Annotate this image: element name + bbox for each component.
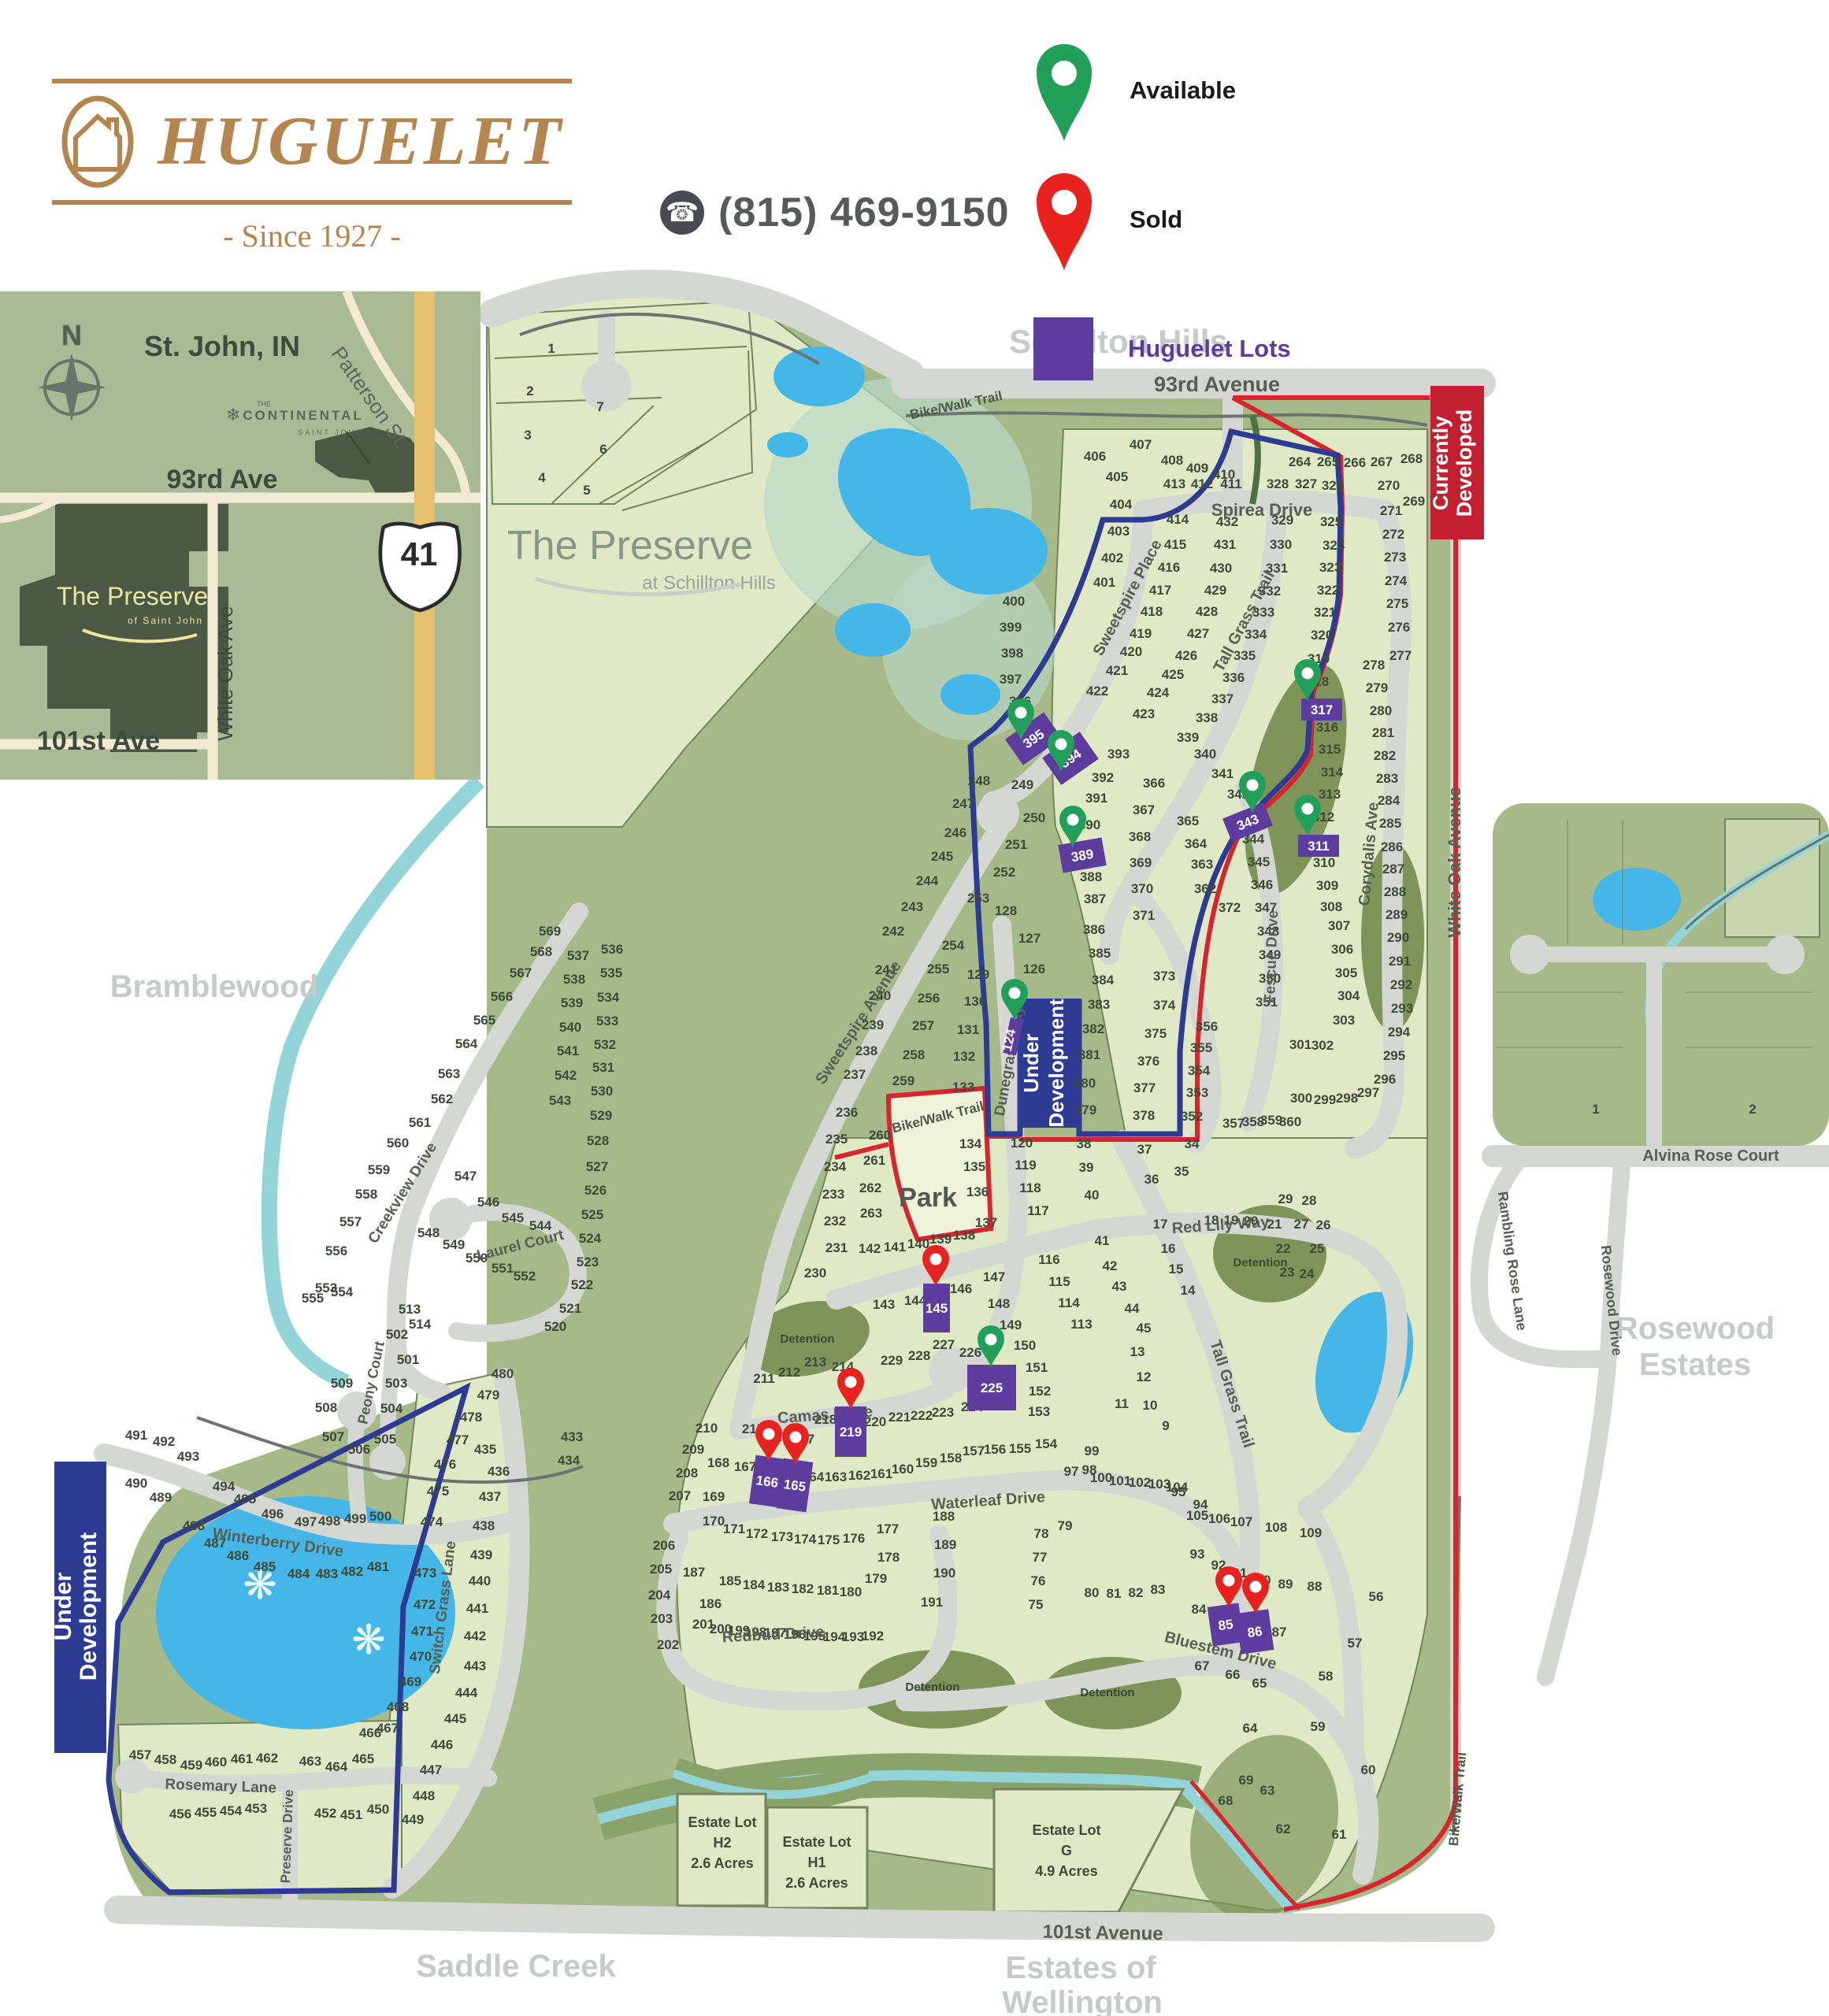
lot-number-80: 80 xyxy=(1085,1585,1100,1600)
lot-number-366: 366 xyxy=(1143,776,1165,791)
lot-number-373: 373 xyxy=(1153,969,1175,984)
lot-number-153: 153 xyxy=(1028,1404,1050,1419)
inset-city-label: St. John, IN xyxy=(144,330,300,362)
lot-number-513: 513 xyxy=(399,1302,421,1317)
lot-number-306: 306 xyxy=(1331,942,1353,957)
lot-number-143: 143 xyxy=(873,1297,895,1312)
lot-number-99: 99 xyxy=(1085,1443,1100,1458)
lot-number-405: 405 xyxy=(1106,469,1128,484)
lot-number-310: 310 xyxy=(1313,855,1335,870)
inset-whiteoak-label: White Oak Ave xyxy=(213,606,237,741)
lot-number-539: 539 xyxy=(561,995,583,1010)
lot-number-174: 174 xyxy=(794,1532,817,1547)
lot-number-561: 561 xyxy=(409,1115,431,1130)
lot-number-159: 159 xyxy=(915,1455,937,1470)
lot-number-171: 171 xyxy=(723,1521,745,1536)
lot-number-251: 251 xyxy=(1005,837,1027,852)
lot-number-161: 161 xyxy=(870,1466,892,1481)
lot-number-545: 545 xyxy=(502,1210,524,1225)
lot-number-62: 62 xyxy=(1276,1821,1291,1836)
lot-number-276: 276 xyxy=(1388,620,1410,635)
lot-number-492: 492 xyxy=(153,1434,175,1449)
lot-number-443: 443 xyxy=(464,1658,486,1673)
lot-number-498: 498 xyxy=(318,1514,340,1529)
lot-number-182: 182 xyxy=(792,1581,814,1596)
lot-number-211: 211 xyxy=(753,1371,774,1386)
inset-map[interactable]: N St. John, IN Patterson St. ❄ THE CONTI… xyxy=(0,291,480,780)
lot-number-565: 565 xyxy=(473,1013,495,1028)
huguelet-lot-number: 85 xyxy=(1217,1617,1234,1633)
lot-number-427: 427 xyxy=(1187,626,1209,641)
lot-number-436: 436 xyxy=(488,1464,510,1479)
lot-number-64: 64 xyxy=(1243,1721,1258,1736)
legend-label-available: Available xyxy=(1130,76,1236,105)
lot-number-474: 474 xyxy=(421,1514,443,1529)
lot-number-460: 460 xyxy=(205,1755,227,1770)
lot-number-35: 35 xyxy=(1174,1164,1189,1179)
lot-number-28: 28 xyxy=(1302,1193,1317,1208)
lot-number-493: 493 xyxy=(177,1449,199,1464)
lot-number-93: 93 xyxy=(1190,1547,1205,1562)
lot-number-270: 270 xyxy=(1378,478,1400,493)
lot-number-526: 526 xyxy=(584,1183,607,1198)
lot-number-484: 484 xyxy=(288,1566,310,1581)
lot-number-3: 3 xyxy=(524,428,531,443)
lot-number-163: 163 xyxy=(825,1469,847,1484)
lot-number-254: 254 xyxy=(942,938,965,953)
lot-number-431: 431 xyxy=(1214,537,1236,552)
lot-number-223: 223 xyxy=(932,1405,954,1420)
lot-number-393: 393 xyxy=(1107,747,1130,762)
huguelet-lot-number: 219 xyxy=(840,1425,862,1440)
lot-number-371: 371 xyxy=(1133,908,1155,923)
lot-number-425: 425 xyxy=(1162,667,1184,682)
lot-number-169: 169 xyxy=(703,1489,725,1504)
lot-number-486: 486 xyxy=(227,1548,249,1563)
lot-number-444: 444 xyxy=(455,1685,478,1700)
lot-number-178: 178 xyxy=(877,1550,900,1565)
lot-number-181: 181 xyxy=(817,1583,839,1598)
lot-number-418: 418 xyxy=(1141,604,1163,619)
huguelet-lot-number: 166 xyxy=(755,1473,780,1491)
lot-number-157: 157 xyxy=(963,1443,985,1458)
lot-number-233: 233 xyxy=(822,1187,844,1202)
lot-number-569: 569 xyxy=(539,924,561,939)
site-map[interactable]: ❋ ❋ xyxy=(0,0,1829,2016)
lot-number-176: 176 xyxy=(843,1531,865,1546)
lot-number-36: 36 xyxy=(1145,1172,1159,1187)
lot-number-337: 337 xyxy=(1211,691,1234,706)
lot-number-173: 173 xyxy=(771,1529,793,1544)
lot-number-327: 327 xyxy=(1295,476,1317,491)
area-label-rosewood-2: Estates xyxy=(1639,1347,1751,1382)
lot-number-66: 66 xyxy=(1226,1667,1241,1682)
lot-number-557: 557 xyxy=(339,1214,362,1229)
lot-number-449: 449 xyxy=(402,1812,424,1827)
lot-number-540: 540 xyxy=(559,1020,581,1035)
lot-number-507: 507 xyxy=(322,1429,344,1444)
lot-number-281: 281 xyxy=(1372,725,1394,740)
lot-number-45: 45 xyxy=(1137,1321,1152,1336)
lot-number-258: 258 xyxy=(903,1047,925,1062)
lot-number-558: 558 xyxy=(355,1187,377,1202)
lot-number-482: 482 xyxy=(341,1564,363,1579)
lot-number-14: 14 xyxy=(1181,1283,1196,1298)
svg-text:The Preserve: The Preserve xyxy=(507,523,753,569)
lot-number-79: 79 xyxy=(1058,1518,1073,1533)
lot-number-142: 142 xyxy=(859,1241,881,1256)
lot-number-149: 149 xyxy=(1000,1317,1022,1332)
svg-text:of Saint John: of Saint John xyxy=(128,615,203,626)
lot-number-9: 9 xyxy=(1162,1418,1169,1433)
lot-number-505: 505 xyxy=(374,1432,396,1447)
lot-number-567: 567 xyxy=(510,965,532,980)
svg-text:Development: Development xyxy=(1044,999,1068,1128)
lot-number-264: 264 xyxy=(1289,454,1311,469)
lot-number-383: 383 xyxy=(1088,997,1110,1012)
lot-number-4: 4 xyxy=(538,470,546,485)
lot-number-477: 477 xyxy=(447,1432,469,1447)
area-label-rosewood-1: Rosewood xyxy=(1616,1311,1775,1346)
page: { "header": { "logo": { "name": "HUGUELE… xyxy=(0,0,1829,2016)
lot-number-483: 483 xyxy=(316,1566,338,1581)
lot-number-67: 67 xyxy=(1195,1658,1210,1673)
lot-number-177: 177 xyxy=(877,1521,899,1536)
lot-number-209: 209 xyxy=(682,1442,704,1457)
lot-number-250: 250 xyxy=(1023,810,1045,825)
huguelet-lot-219[interactable]: 219 xyxy=(835,1406,866,1457)
svg-text:The Preserve: The Preserve xyxy=(57,582,208,610)
lot-number-472: 472 xyxy=(414,1597,436,1612)
lot-number-419: 419 xyxy=(1130,626,1152,641)
lot-number-380: 380 xyxy=(1074,1076,1096,1091)
lot-number-521: 521 xyxy=(559,1301,581,1316)
lot-number-489: 489 xyxy=(150,1490,172,1505)
lot-number-202: 202 xyxy=(657,1637,679,1652)
lot-number-341: 341 xyxy=(1211,766,1234,781)
map-legend: Available Sold Huguelet Lots xyxy=(1033,39,1475,427)
lot-number-133: 133 xyxy=(952,1080,974,1095)
lot-number-339: 339 xyxy=(1177,730,1199,745)
lot-number-398: 398 xyxy=(1001,646,1023,661)
detention-label-0: Detention xyxy=(780,1332,834,1346)
lot-number-162: 162 xyxy=(848,1468,870,1483)
lot-number-222: 222 xyxy=(911,1408,933,1423)
lot-number-1: 1 xyxy=(547,341,555,356)
lot-number-273: 273 xyxy=(1384,550,1406,565)
huguelet-house-icon xyxy=(60,94,135,189)
lot-number-26: 26 xyxy=(1316,1217,1331,1232)
lot-number-210: 210 xyxy=(696,1421,718,1436)
estate-lot-line: Estate Lot xyxy=(1032,1822,1100,1838)
lot-number-180: 180 xyxy=(840,1584,862,1599)
street-label-101st-avenue: 101st Avenue xyxy=(1042,1921,1163,1945)
lot-number-132: 132 xyxy=(953,1049,975,1064)
lot-number-500: 500 xyxy=(369,1509,391,1524)
huguelet-lot-317[interactable]: 317 xyxy=(1301,699,1342,721)
huguelet-lot-311[interactable]: 311 xyxy=(1298,835,1339,857)
lot-number-147: 147 xyxy=(983,1269,1005,1284)
logo-name: HUGUELET xyxy=(158,107,564,176)
detention-label-2: Detention xyxy=(905,1681,959,1694)
lot-number-138: 138 xyxy=(953,1228,975,1243)
street-label-white-oak-avenue: White Oak Avenue xyxy=(1445,787,1464,938)
lot-number-546: 546 xyxy=(477,1195,499,1210)
lot-number-314: 314 xyxy=(1321,765,1344,780)
lot-number-78: 78 xyxy=(1034,1526,1049,1541)
lot-number-119: 119 xyxy=(1015,1158,1036,1173)
lot-number-208: 208 xyxy=(676,1466,698,1480)
huguelet-lot-number: 317 xyxy=(1311,702,1333,717)
lot-number-326: 326 xyxy=(1322,478,1344,493)
area-label-wellington-2: Wellington xyxy=(1002,1985,1163,2016)
lot-number-509: 509 xyxy=(331,1376,353,1391)
lot-number-397: 397 xyxy=(1000,672,1022,687)
lot-number-179: 179 xyxy=(865,1571,887,1586)
lot-number-148: 148 xyxy=(988,1296,1010,1311)
rosewood-parcel xyxy=(1493,803,1829,1146)
lot-number-458: 458 xyxy=(154,1752,176,1767)
lot-number-286: 286 xyxy=(1381,839,1403,854)
lot-number-541: 541 xyxy=(557,1043,579,1058)
lot-number-204: 204 xyxy=(648,1588,671,1603)
lot-number-475: 475 xyxy=(427,1484,449,1499)
lot-number-522: 522 xyxy=(571,1277,593,1292)
lot-number-485: 485 xyxy=(254,1559,276,1574)
lot-number-243: 243 xyxy=(901,899,923,914)
lot-number-355: 355 xyxy=(1190,1040,1212,1055)
lot-number-440: 440 xyxy=(469,1573,491,1588)
lot-number-382: 382 xyxy=(1082,1021,1104,1036)
lot-number-435: 435 xyxy=(474,1442,496,1457)
lot-number-76: 76 xyxy=(1031,1573,1046,1588)
lot-number-6: 6 xyxy=(599,442,607,457)
huguelet-lot-145[interactable]: 145 xyxy=(923,1284,950,1332)
lot-number-376: 376 xyxy=(1137,1054,1159,1069)
estate-lot-line: Estate Lot xyxy=(782,1834,851,1850)
lot-number-368: 368 xyxy=(1129,829,1151,844)
huguelet-lot-number: 145 xyxy=(926,1301,948,1316)
lot-number-369: 369 xyxy=(1130,855,1152,870)
lot-number-523: 523 xyxy=(577,1254,599,1269)
lot-number-463: 463 xyxy=(299,1754,321,1769)
lot-number-537: 537 xyxy=(567,948,589,963)
park-label: Park xyxy=(899,1183,957,1213)
lot-number-352: 352 xyxy=(1181,1109,1203,1124)
lot-number-150: 150 xyxy=(1014,1338,1036,1353)
lot-number-293: 293 xyxy=(1391,1001,1413,1016)
lot-number-167: 167 xyxy=(734,1459,756,1474)
lot-number-559: 559 xyxy=(368,1162,390,1177)
lot-number-494: 494 xyxy=(213,1479,236,1494)
phone-number[interactable]: (815) 469-9150 xyxy=(718,189,1010,236)
lot-number-248: 248 xyxy=(968,773,990,788)
lot-number-245: 245 xyxy=(931,849,953,864)
lot-number-227: 227 xyxy=(933,1337,955,1352)
lot-number-562: 562 xyxy=(431,1091,453,1106)
estate-lot-line: 2.6 Acres xyxy=(785,1875,848,1891)
lot-number-152: 152 xyxy=(1029,1384,1051,1399)
lot-number-353: 353 xyxy=(1186,1085,1208,1100)
lot-number-473: 473 xyxy=(414,1566,436,1581)
lot-number-423: 423 xyxy=(1133,706,1155,721)
lot-number-88: 88 xyxy=(1308,1579,1323,1594)
lot-number-294: 294 xyxy=(1388,1025,1411,1039)
lot-number-406: 406 xyxy=(1084,449,1106,464)
lot-number-37: 37 xyxy=(1137,1142,1152,1157)
lot-number-57: 57 xyxy=(1348,1636,1363,1651)
lot-number-297: 297 xyxy=(1357,1085,1379,1100)
lot-number-206: 206 xyxy=(653,1538,675,1553)
lot-number-564: 564 xyxy=(455,1036,478,1051)
lot-number-139: 139 xyxy=(929,1232,952,1247)
lot-number-114: 114 xyxy=(1058,1295,1080,1310)
lot-number-481: 481 xyxy=(367,1559,389,1574)
lot-number-259: 259 xyxy=(892,1073,914,1088)
lot-number-183: 183 xyxy=(767,1580,789,1595)
lot-number-379: 379 xyxy=(1074,1102,1096,1117)
lot-number-560: 560 xyxy=(387,1136,409,1151)
lot-number-520: 520 xyxy=(544,1319,566,1334)
legend-row-available[interactable]: Available xyxy=(1033,39,1475,142)
lot-number-378: 378 xyxy=(1133,1108,1155,1123)
lot-number-160: 160 xyxy=(892,1462,914,1477)
lot-number-82: 82 xyxy=(1129,1585,1144,1600)
inset-101st-label: 101st Ave xyxy=(37,726,160,756)
lot-number-404: 404 xyxy=(1110,497,1133,512)
lot-number-529: 529 xyxy=(590,1108,612,1123)
area-label-wellington-1: Estates of xyxy=(1005,1951,1156,1985)
lot-number-462: 462 xyxy=(256,1751,278,1766)
lot-number-438: 438 xyxy=(473,1518,495,1533)
lot-number-2: 2 xyxy=(526,384,533,398)
lot-number-129: 129 xyxy=(967,967,989,982)
lot-number-118: 118 xyxy=(1019,1180,1041,1195)
lot-number-387: 387 xyxy=(1084,891,1106,906)
area-label-saddle-creek: Saddle Creek xyxy=(416,1949,616,1984)
lot-number-63: 63 xyxy=(1260,1783,1275,1798)
svg-text:❄: ❄ xyxy=(226,405,240,424)
lot-number-524: 524 xyxy=(579,1231,602,1246)
huguelet-lots-swatch xyxy=(1033,317,1093,380)
lot-number-453: 453 xyxy=(245,1801,267,1816)
lot-number-292: 292 xyxy=(1390,977,1412,992)
lot-number-130: 130 xyxy=(964,994,986,1009)
lot-number-321: 321 xyxy=(1314,605,1336,620)
lot-number-445: 445 xyxy=(444,1711,466,1726)
lot-number-307: 307 xyxy=(1328,918,1350,933)
lot-number-313: 313 xyxy=(1319,787,1341,802)
lot-number-277: 277 xyxy=(1389,648,1412,663)
lot-number-172: 172 xyxy=(746,1526,768,1541)
lot-number-388: 388 xyxy=(1080,869,1102,884)
lot-number-414: 414 xyxy=(1167,512,1189,527)
lot-number-226: 226 xyxy=(959,1345,981,1360)
lot-number-279: 279 xyxy=(1366,680,1388,695)
lot-number-249: 249 xyxy=(1011,777,1033,792)
lot-number-58: 58 xyxy=(1319,1669,1334,1684)
lot-number-235: 235 xyxy=(825,1132,848,1147)
legend-row-sold[interactable]: Sold xyxy=(1033,169,1475,271)
lot-number-5: 5 xyxy=(583,483,590,498)
lot-number-468: 468 xyxy=(387,1699,409,1714)
lot-number-303: 303 xyxy=(1333,1013,1355,1028)
estate-lot-line: H2 xyxy=(713,1835,731,1851)
phone-block[interactable]: ☎ (815) 469-9150 xyxy=(660,189,1010,236)
lot-number-25: 25 xyxy=(1310,1241,1325,1256)
lot-number-402: 402 xyxy=(1101,550,1123,565)
phone-icon: ☎ xyxy=(660,191,704,235)
lot-number-260: 260 xyxy=(869,1128,891,1143)
lot-number-457: 457 xyxy=(129,1747,151,1762)
lot-number-282: 282 xyxy=(1374,748,1396,763)
lot-number-536: 536 xyxy=(601,942,623,957)
lot-number-268: 268 xyxy=(1401,451,1423,466)
lot-number-295: 295 xyxy=(1383,1048,1405,1063)
lot-number-59: 59 xyxy=(1311,1719,1326,1734)
estate-lot-line: 2.6 Acres xyxy=(691,1855,753,1871)
lot-number-480: 480 xyxy=(492,1366,514,1381)
lot-number-263: 263 xyxy=(860,1206,882,1221)
lot-number-324: 324 xyxy=(1323,538,1345,553)
lot-number-128: 128 xyxy=(995,903,1017,918)
lot-number-146: 146 xyxy=(950,1281,972,1296)
huguelet-lot-86[interactable]: 86 xyxy=(1236,1609,1274,1654)
lot-number-556: 556 xyxy=(325,1243,347,1258)
lot-number-108: 108 xyxy=(1265,1520,1287,1535)
lot-number-299: 299 xyxy=(1314,1092,1336,1107)
available-pin-icon xyxy=(1033,39,1095,143)
lot-number-232: 232 xyxy=(824,1214,846,1228)
huguelet-lot-number: 225 xyxy=(981,1380,1003,1395)
lot-number-105: 105 xyxy=(1186,1508,1208,1523)
lot-number-290: 290 xyxy=(1387,930,1409,945)
lot-number-280: 280 xyxy=(1370,703,1392,718)
lot-number-291: 291 xyxy=(1389,954,1411,969)
legend-row-huguelet[interactable]: Huguelet Lots xyxy=(1033,298,1475,400)
lot-number-89: 89 xyxy=(1278,1577,1293,1592)
lot-number-304: 304 xyxy=(1337,988,1360,1003)
lot-number-401: 401 xyxy=(1093,575,1115,590)
lot-number-528: 528 xyxy=(587,1133,609,1148)
lot-number-75: 75 xyxy=(1029,1597,1044,1612)
lot-number-554: 554 xyxy=(331,1284,354,1299)
lot-number-392: 392 xyxy=(1092,770,1114,785)
lot-number-364: 364 xyxy=(1185,836,1208,851)
lot-number-97: 97 xyxy=(1064,1464,1079,1479)
lot-number-175: 175 xyxy=(818,1532,840,1547)
lot-number-274: 274 xyxy=(1385,573,1408,588)
lot-number-566: 566 xyxy=(491,989,513,1004)
lot-number-439: 439 xyxy=(470,1547,492,1562)
lot-number-127: 127 xyxy=(1018,931,1041,946)
lot-number-266: 266 xyxy=(1344,455,1366,470)
detention-label-3: Detention xyxy=(1080,1686,1134,1699)
lot-number-41: 41 xyxy=(1095,1233,1110,1248)
lot-number-298: 298 xyxy=(1336,1091,1358,1106)
lot-number-495: 495 xyxy=(234,1492,256,1506)
lot-number-184: 184 xyxy=(743,1577,766,1592)
lot-number-244: 244 xyxy=(916,873,939,888)
lot-number-255: 255 xyxy=(927,962,949,976)
lot-number-151: 151 xyxy=(1026,1360,1048,1375)
lot-number-87: 87 xyxy=(1272,1625,1287,1640)
huguelet-lot-225[interactable]: 225 xyxy=(967,1365,1016,1410)
lot-number-469: 469 xyxy=(399,1674,421,1689)
lot-number-238: 238 xyxy=(855,1043,877,1058)
lot-number-488: 488 xyxy=(183,1518,205,1533)
lot-number-464: 464 xyxy=(325,1759,348,1774)
